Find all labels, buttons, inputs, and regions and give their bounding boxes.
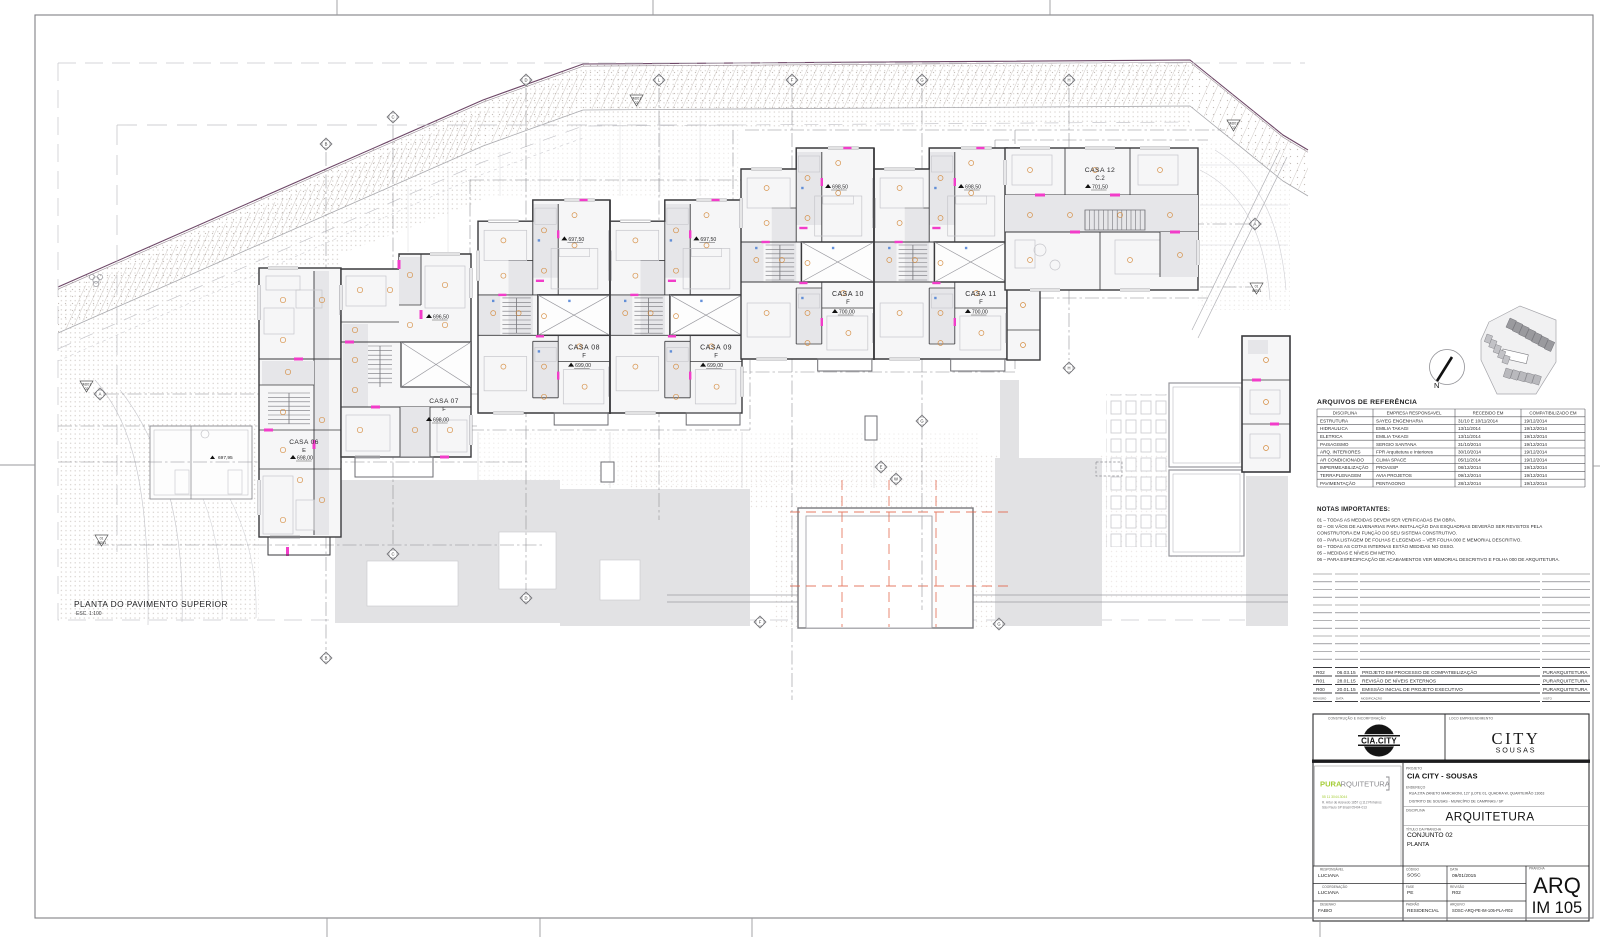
svg-text:F: F bbox=[791, 78, 794, 83]
svg-text:PROASSP: PROASSP bbox=[1376, 465, 1398, 470]
svg-text:55 11 3044.3044: 55 11 3044.3044 bbox=[1322, 795, 1347, 799]
svg-text:19/12/2014: 19/12/2014 bbox=[1524, 465, 1547, 470]
svg-text:28.01.15: 28.01.15 bbox=[1337, 678, 1356, 684]
svg-text:R00: R00 bbox=[1316, 687, 1325, 693]
svg-text:PURARQUITETURA: PURARQUITETURA bbox=[1543, 670, 1588, 676]
svg-text:IM201: IM201 bbox=[1229, 122, 1239, 126]
svg-text:R02: R02 bbox=[1316, 670, 1325, 676]
svg-text:01: 01 bbox=[1255, 285, 1259, 289]
svg-text:ARQ. INTERIORES: ARQ. INTERIORES bbox=[1320, 450, 1361, 455]
svg-text:PROJETO: PROJETO bbox=[1406, 767, 1422, 771]
svg-text:FASE: FASE bbox=[1406, 885, 1414, 889]
svg-text:C.2: C.2 bbox=[1095, 176, 1105, 182]
svg-text:700,00: 700,00 bbox=[972, 310, 988, 316]
svg-text:AR CONDICIONADO: AR CONDICIONADO bbox=[1320, 457, 1364, 462]
svg-text:DATA: DATA bbox=[1450, 868, 1459, 872]
svg-text:CÓDIGO: CÓDIGO bbox=[1406, 867, 1419, 872]
svg-text:CASA 10: CASA 10 bbox=[832, 291, 864, 298]
svg-text:SOSC: SOSC bbox=[1407, 873, 1421, 879]
svg-text:697,50: 697,50 bbox=[568, 237, 584, 243]
svg-text:IM201: IM201 bbox=[632, 97, 642, 101]
svg-text:D: D bbox=[524, 596, 527, 601]
svg-text:PLANTA DO PAVIMENTO SUPERIOR: PLANTA DO PAVIMENTO SUPERIOR bbox=[74, 599, 228, 609]
svg-text:28/12/2014: 28/12/2014 bbox=[1458, 481, 1481, 486]
svg-text:F: F bbox=[846, 300, 850, 306]
svg-text:H: H bbox=[1067, 366, 1070, 371]
svg-text:REVISÃO: REVISÃO bbox=[1450, 884, 1465, 889]
svg-text:AVIA PROJETOS: AVIA PROJETOS bbox=[1376, 473, 1412, 478]
svg-text:CIA.CITY: CIA.CITY bbox=[1361, 736, 1397, 745]
svg-text:02: 02 bbox=[1232, 126, 1236, 130]
svg-text:30/10/2014: 30/10/2014 bbox=[1458, 450, 1481, 455]
svg-text:20.01.15: 20.01.15 bbox=[1337, 687, 1356, 693]
svg-text:PURARQUITETURA: PURARQUITETURA bbox=[1543, 687, 1588, 693]
svg-text:REVISÃO DE NÍVEIS EXTERNOS: REVISÃO DE NÍVEIS EXTERNOS bbox=[1362, 677, 1436, 684]
svg-text:B: B bbox=[325, 142, 328, 147]
svg-text:06 – PARA ESPECIFICAÇÃO DE: 06 – PARA ESPECIFICAÇÃO DE ACABAMENTOS V… bbox=[1317, 556, 1560, 562]
svg-text:698,50: 698,50 bbox=[965, 185, 981, 191]
svg-text:F: F bbox=[582, 354, 586, 360]
svg-text:RUA ZITA ZANETO MARCHIONI, 127: RUA ZITA ZANETO MARCHIONI, 127 (LOTE 01,… bbox=[1409, 791, 1544, 796]
svg-text:PAISAGISMO: PAISAGISMO bbox=[1320, 442, 1349, 447]
svg-text:698,00: 698,00 bbox=[297, 456, 313, 462]
svg-text:IM201: IM201 bbox=[97, 541, 107, 545]
svg-text:19/12/2014: 19/12/2014 bbox=[1524, 450, 1547, 455]
svg-text:RESPONSÁVEL: RESPONSÁVEL bbox=[1320, 868, 1344, 872]
svg-text:CASA 06: CASA 06 bbox=[289, 439, 319, 446]
svg-text:HIDRAULICA: HIDRAULICA bbox=[1320, 426, 1349, 431]
svg-text:COORDENAÇÃO: COORDENAÇÃO bbox=[1322, 884, 1348, 889]
svg-text:F: F bbox=[759, 620, 762, 625]
svg-text:ESTRUTURA: ESTRUTURA bbox=[1320, 418, 1349, 423]
svg-text:IMPERMEABILIZAÇÃO: IMPERMEABILIZAÇÃO bbox=[1320, 464, 1369, 470]
svg-text:31/10 E 10/11/2014: 31/10 E 10/11/2014 bbox=[1458, 418, 1498, 423]
svg-text:COMPATIBILIZADO EM: COMPATIBILIZADO EM bbox=[1529, 411, 1577, 416]
svg-text:19/12/2014: 19/12/2014 bbox=[1524, 426, 1547, 431]
svg-text:W: W bbox=[894, 477, 898, 482]
svg-text:FPR Arquitetura e Interiores: FPR Arquitetura e Interiores bbox=[1376, 450, 1434, 455]
svg-text:F: F bbox=[442, 407, 446, 413]
svg-text:696,50: 696,50 bbox=[433, 315, 449, 321]
svg-text:02 – OS VÃOS DE ALVENARIA: 02 – OS VÃOS DE ALVENARIAS PARA INSTALAÇ… bbox=[1317, 523, 1543, 529]
svg-text:09/12/2014: 09/12/2014 bbox=[1458, 473, 1481, 478]
svg-text:05 – MEDIDAS E NÍVEIS EM: 05 – MEDIDAS E NÍVEIS EM METRO. bbox=[1317, 550, 1396, 556]
svg-text:ARQ: ARQ bbox=[1533, 873, 1581, 898]
svg-text:REVISÃO: REVISÃO bbox=[1313, 696, 1327, 701]
svg-text:700,00: 700,00 bbox=[839, 310, 855, 316]
svg-text:SERGIO SANTANA: SERGIO SANTANA bbox=[1376, 442, 1417, 447]
svg-text:CASA 12: CASA 12 bbox=[1085, 167, 1115, 174]
svg-text:CASA 09: CASA 09 bbox=[700, 344, 732, 351]
svg-text:31/10/2014: 31/10/2014 bbox=[1458, 442, 1481, 447]
svg-text:CONJUNTO 02: CONJUNTO 02 bbox=[1407, 832, 1453, 839]
svg-text:19/12/2014: 19/12/2014 bbox=[1524, 442, 1547, 447]
svg-text:699,00: 699,00 bbox=[707, 363, 723, 369]
svg-text:PRANCHA: PRANCHA bbox=[1529, 867, 1545, 871]
svg-text:ARQUIVOS DE REFERÊNCIA: ARQUIVOS DE REFERÊNCIA bbox=[1317, 397, 1417, 406]
svg-text:EMILIA TAKAGI: EMILIA TAKAGI bbox=[1376, 434, 1409, 439]
svg-text:F: F bbox=[979, 300, 983, 306]
svg-text:G: G bbox=[997, 622, 1000, 627]
svg-text:PE: PE bbox=[1407, 890, 1413, 896]
svg-text:RQUITETURA: RQUITETURA bbox=[1341, 780, 1391, 789]
svg-text:19/12/2014: 19/12/2014 bbox=[1524, 473, 1547, 478]
svg-text:A: A bbox=[99, 392, 102, 397]
svg-text:LUCIANA: LUCIANA bbox=[1318, 890, 1340, 896]
svg-text:DISCIPLINA: DISCIPLINA bbox=[1406, 809, 1426, 813]
svg-text:698,00: 698,00 bbox=[433, 418, 449, 424]
svg-text:CASA 07: CASA 07 bbox=[429, 398, 459, 405]
svg-text:DISCIPLINA: DISCIPLINA bbox=[1333, 411, 1357, 416]
svg-text:E: E bbox=[302, 448, 306, 454]
svg-text:RESIDENCIAL: RESIDENCIAL bbox=[1407, 908, 1439, 914]
svg-text:PADRÃO: PADRÃO bbox=[1406, 902, 1420, 907]
svg-text:IM201: IM201 bbox=[1252, 289, 1262, 293]
svg-text:698,50: 698,50 bbox=[832, 185, 848, 191]
svg-text:MODIFICAÇÃO: MODIFICAÇÃO bbox=[1361, 696, 1383, 701]
svg-text:NOTAS IMPORTANTES:: NOTAS IMPORTANTES: bbox=[1317, 506, 1390, 513]
svg-text:19/12/2014: 19/12/2014 bbox=[1524, 457, 1547, 462]
svg-text:19/12/2014: 19/12/2014 bbox=[1524, 434, 1547, 439]
svg-text:19/12/2014: 19/12/2014 bbox=[1524, 481, 1547, 486]
svg-text:TÍTULO DA PRANCHA: TÍTULO DA PRANCHA bbox=[1406, 828, 1442, 832]
svg-text:R. Artur de Azevedo 1857 cj 11: R. Artur de Azevedo 1857 cj 112 Pinheiro… bbox=[1322, 801, 1382, 805]
svg-text:19/12/2014: 19/12/2014 bbox=[1524, 418, 1547, 423]
svg-text:01 – TODAS AS MEDIDAS DEV: 01 – TODAS AS MEDIDAS DEVEM SER VERIFICA… bbox=[1317, 518, 1456, 523]
svg-text:E: E bbox=[880, 465, 883, 470]
svg-text:R01: R01 bbox=[1316, 678, 1325, 684]
svg-text:RECEBIDO EM: RECEBIDO EM bbox=[1473, 411, 1504, 416]
svg-text:N: N bbox=[1434, 381, 1439, 390]
svg-text:PURA: PURA bbox=[1320, 780, 1342, 789]
svg-text:CONSTRUTORA EM FUNÇÃO DO S: CONSTRUTORA EM FUNÇÃO DO SEU SISTEMA CON… bbox=[1317, 530, 1457, 536]
svg-text:G: G bbox=[920, 78, 923, 83]
svg-text:ENDEREÇO: ENDEREÇO bbox=[1406, 786, 1426, 790]
svg-text:IM201: IM201 bbox=[82, 383, 92, 387]
svg-text:CIA CITY - SOUSAS: CIA CITY - SOUSAS bbox=[1407, 772, 1478, 781]
svg-text:CONSTRUÇÃO E INCORPORAÇÃO: CONSTRUÇÃO E INCORPORAÇÃO bbox=[1328, 716, 1386, 721]
svg-text:697,95: 697,95 bbox=[218, 455, 233, 461]
svg-text:ARQUIVO: ARQUIVO bbox=[1450, 903, 1465, 907]
svg-text:ELETRICA: ELETRICA bbox=[1320, 434, 1343, 439]
svg-text:701,50: 701,50 bbox=[1092, 185, 1108, 191]
svg-text:D: D bbox=[524, 78, 527, 83]
svg-text:PLANTA: PLANTA bbox=[1407, 842, 1429, 848]
svg-text:CLIMA SPACE: CLIMA SPACE bbox=[1376, 457, 1406, 462]
svg-text:PROJETO EM PROCESSO DE COM: PROJETO EM PROCESSO DE COMPATIBILIZAÇÃO bbox=[1362, 669, 1477, 676]
svg-text:C: C bbox=[391, 115, 394, 120]
svg-text:VISTO: VISTO bbox=[1543, 697, 1553, 701]
svg-text:B: B bbox=[325, 656, 328, 661]
svg-text:R02: R02 bbox=[1452, 890, 1461, 896]
svg-text:08/12/2014: 08/12/2014 bbox=[1458, 465, 1481, 470]
svg-text:FABIO: FABIO bbox=[1318, 908, 1332, 914]
svg-text:TERRAPLENAGEM: TERRAPLENAGEM bbox=[1320, 473, 1361, 478]
svg-text:CASA 11: CASA 11 bbox=[965, 291, 996, 298]
svg-text:IM 105: IM 105 bbox=[1532, 899, 1582, 917]
svg-text:CASA 08: CASA 08 bbox=[568, 344, 600, 351]
svg-text:DATA: DATA bbox=[1336, 697, 1344, 701]
svg-text:SOUSAS: SOUSAS bbox=[1496, 746, 1537, 755]
svg-text:F: F bbox=[714, 354, 718, 360]
svg-text:699,00: 699,00 bbox=[575, 363, 591, 369]
svg-text:LOCO EMPREENDIMENTO: LOCO EMPREENDIMENTO bbox=[1449, 717, 1493, 721]
svg-text:01: 01 bbox=[100, 537, 104, 541]
svg-text:ARQUITETURA: ARQUITETURA bbox=[1446, 810, 1535, 824]
svg-text:C: C bbox=[391, 552, 394, 557]
svg-text:06.03.15: 06.03.15 bbox=[1337, 670, 1356, 676]
svg-text:SOSC-ARQ-PE-IM-105-PLA-R02: SOSC-ARQ-PE-IM-105-PLA-R02 bbox=[1452, 908, 1513, 913]
svg-text:02: 02 bbox=[635, 101, 639, 105]
svg-text:SAYEG ENGENHARIA: SAYEG ENGENHARIA bbox=[1376, 418, 1424, 423]
svg-text:LUCIANA: LUCIANA bbox=[1318, 873, 1340, 879]
svg-text:02: 02 bbox=[85, 387, 89, 391]
svg-text:13/11/2014: 13/11/2014 bbox=[1458, 434, 1481, 439]
svg-text:PENTAGONO: PENTAGONO bbox=[1376, 481, 1405, 486]
svg-text:DISTRITO DE SOUSAS - MUNICÍPIO: DISTRITO DE SOUSAS - MUNICÍPIO DE CAMPIN… bbox=[1409, 800, 1504, 804]
svg-text:09/01/2015: 09/01/2015 bbox=[1452, 873, 1476, 879]
svg-text:ESC. 1:100: ESC. 1:100 bbox=[76, 611, 102, 617]
svg-text:PAVIMENTAÇÃO: PAVIMENTAÇÃO bbox=[1320, 480, 1356, 486]
svg-text:13/11/2014: 13/11/2014 bbox=[1458, 426, 1481, 431]
svg-text:697,50: 697,50 bbox=[700, 237, 716, 243]
svg-text:G: G bbox=[920, 419, 923, 424]
svg-text:PURARQUITETURA: PURARQUITETURA bbox=[1543, 678, 1588, 684]
svg-text:EMISSÃO INICIAL DE PROJETO: EMISSÃO INICIAL DE PROJETO EXECUTIVO bbox=[1362, 686, 1463, 693]
svg-text:04 – TODAS AS COTAS INTER: 04 – TODAS AS COTAS INTERNAS ESTÃO MEDID… bbox=[1317, 543, 1454, 549]
svg-text:São Paulo SP Brasil 05404-013: São Paulo SP Brasil 05404-013 bbox=[1322, 806, 1367, 810]
svg-text:EMILIA TAKAGI: EMILIA TAKAGI bbox=[1376, 426, 1409, 431]
svg-text:03 – PARA LISTAGEM DE FOL: 03 – PARA LISTAGEM DE FOLHAS E LEGENDAS … bbox=[1317, 537, 1522, 542]
svg-text:EMPRESA RESPONSAVEL: EMPRESA RESPONSAVEL bbox=[1387, 411, 1442, 416]
svg-text:05/11/2014: 05/11/2014 bbox=[1458, 457, 1481, 462]
svg-text:DESENHO: DESENHO bbox=[1320, 903, 1336, 907]
svg-text:H: H bbox=[1067, 78, 1070, 83]
